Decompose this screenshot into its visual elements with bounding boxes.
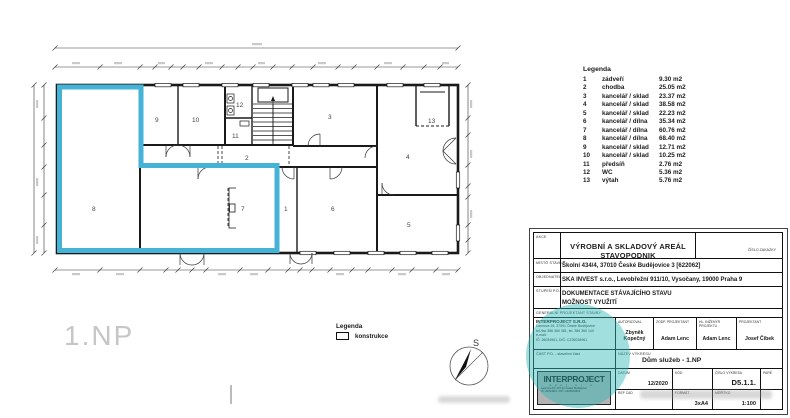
titleblock-designers: INTERPROJECT S.R.O. Lannova 16, 37001 Če… [534, 318, 782, 350]
titleblock-row-misto: MÍSTO STAVBY Školní 434/4, 37010 České B… [534, 259, 782, 273]
room-label-5: 5 [407, 222, 411, 229]
legend-row: 10 kancelář / sklad 10.25 m2 [583, 152, 743, 160]
walls [57, 85, 458, 253]
documentation-stage: DOKUMENTACE STÁVAJÍCÍHO STAVU MOŽNOST VY… [562, 290, 672, 307]
legend-row: 2 chodba 25.05 m2 [583, 84, 743, 92]
drawing-name-label: NÁZEV VÝKRESU [618, 352, 651, 356]
drawing-name: Dům služeb - 1.NP [642, 357, 701, 364]
room-label-11: 11 [232, 133, 239, 140]
pd-part: ČÁST P.D. - stavební část [534, 350, 616, 368]
scale-cell: MĚŘÍTKO 1:100 [713, 390, 761, 410]
room-label-7: 7 [241, 206, 245, 213]
client: SKA INVEST s.r.o., Levobřežní 911/10, Vy… [562, 277, 742, 283]
authorized-by: AUTORIZOVAL Zbyněk Kopečný [616, 318, 654, 349]
format-cell: FORMÁT 3xA4 [673, 390, 713, 410]
construction-swatch [336, 332, 349, 340]
legend-row: 12 WC 5.36 m2 [583, 169, 743, 177]
wc-fixtures [227, 94, 249, 126]
windows [155, 83, 460, 254]
legend-row: 4 kancelář / sklad 38.58 m2 [583, 101, 743, 109]
room7-shaft-bracket [229, 188, 236, 228]
legend-row: 9 kancelář / sklad 12.71 m2 [583, 144, 743, 152]
akce-label: AKCE [536, 235, 547, 239]
room-label-2: 2 [245, 155, 249, 162]
date-cell: DATUM 12/2020 [616, 369, 673, 389]
legend-row: 7 kancelář / dílna 60.76 m2 [583, 127, 743, 135]
stamp-cell: INTERPROJECT s p o l . s r . o . Lannova… [534, 369, 616, 409]
pare-cell: PARÉ [761, 369, 782, 389]
room-label-6: 6 [331, 206, 335, 213]
room-label-9: 9 [155, 117, 159, 124]
legend-row: 8 kancelář / dílna 68.40 m2 [583, 135, 743, 143]
room-legend-title: Legenda [583, 66, 743, 73]
titleblock-row-objednatel: OBJEDNATEL SKA INVEST s.r.o., Levobřežní… [534, 273, 782, 287]
titleblock-row-akce: AKCE VÝROBNÍ A SKLADOVÝ AREÁL STAVOPODNI… [534, 233, 782, 259]
code-cell: KÓD [673, 369, 713, 389]
general-designer-label: GENERÁLNÍ PROJEKTANT STAVBY [536, 311, 601, 315]
construction-legend: Legenda konstrukce [336, 323, 388, 340]
legend-row: 1 zádveří 9.30 m2 [583, 76, 743, 84]
chief-engineer: HL. INŽENÝR PROJEKTU Adam Lenc [697, 318, 737, 349]
room-legend: Legenda 1 zádveří 9.30 m2 2 chodba 25.05… [583, 66, 743, 186]
stupen-label: STUPEŇ P.D. [536, 289, 560, 293]
order-number-label: ČÍSLO ZAKÁZKY [748, 248, 776, 252]
legend-row: 3 kancelář / sklad 23.37 m2 [583, 93, 743, 101]
drawing-number: D5.1.1. [732, 378, 756, 387]
legend-row: 5 kancelář / sklad 22.23 m2 [583, 110, 743, 118]
room-label-8: 8 [92, 206, 96, 213]
format-value: 3xA4 [695, 401, 708, 407]
room-label-10: 10 [192, 117, 200, 124]
room-label-3: 3 [328, 114, 332, 121]
floor-label: 1.NP [64, 320, 134, 352]
titleblock-bottom: INTERPROJECT s p o l . s r . o . Lannova… [534, 369, 782, 409]
legend-row: 11 předsíň 2.76 m2 [583, 161, 743, 169]
doors [166, 134, 456, 265]
date-value: 12/2020 [648, 381, 668, 387]
compass: S [450, 338, 488, 385]
titleblock: AKCE VÝROBNÍ A SKLADOVÝ AREÁL STAVOPODNI… [533, 232, 783, 410]
company-info: INTERPROJECT S.R.O. Lannova 16, 37001 Če… [534, 318, 616, 349]
objednatel-label: OBJEDNATEL [536, 275, 561, 279]
designer: PROJEKTANT Josef Čibek [737, 318, 782, 349]
compass-north-label: S [473, 338, 479, 348]
titleblock-row-general: GENERÁLNÍ PROJEKTANT STAVBY [534, 309, 782, 318]
scale-value: 1:100 [742, 401, 756, 407]
construction-legend-title: Legenda [336, 323, 388, 330]
refcad-cell: REF CAD [616, 390, 673, 410]
highlight-outline [60, 87, 278, 251]
room-label-4: 4 [406, 154, 410, 161]
dimension-lines [32, 46, 471, 273]
titleblock-row-drawing-name: ČÁST P.D. - stavební část NÁZEV VÝKRESU … [534, 350, 782, 369]
room-label-12: 12 [236, 102, 244, 109]
project-title: VÝROBNÍ A SKLADOVÝ AREÁL STAVOPODNIK [562, 242, 694, 260]
room-label-13: 13 [428, 118, 436, 125]
legend-row: 6 kancelář / dílna 35.34 m2 [583, 118, 743, 126]
staircase [253, 88, 293, 145]
titleblock-row-stupen: STUPEŇ P.D. DOKUMENTACE STÁVAJÍCÍHO STAV… [534, 287, 782, 309]
room-label-1: 1 [284, 206, 288, 213]
drawing-number-cell: ČÍSLO VÝKRESU D5.1.1. [713, 369, 761, 389]
site-address: Školní 434/4, 37010 České Budějovice 3 [… [562, 263, 700, 269]
responsible-designer: ZODP. PROJEKTANT Adam Lenc [654, 318, 697, 349]
company-stamp: INTERPROJECT s p o l . s r . o . Lannova… [537, 371, 611, 405]
legend-row: 13 výtah 5.76 m2 [583, 177, 743, 185]
construction-legend-item: konstrukce [355, 333, 388, 340]
